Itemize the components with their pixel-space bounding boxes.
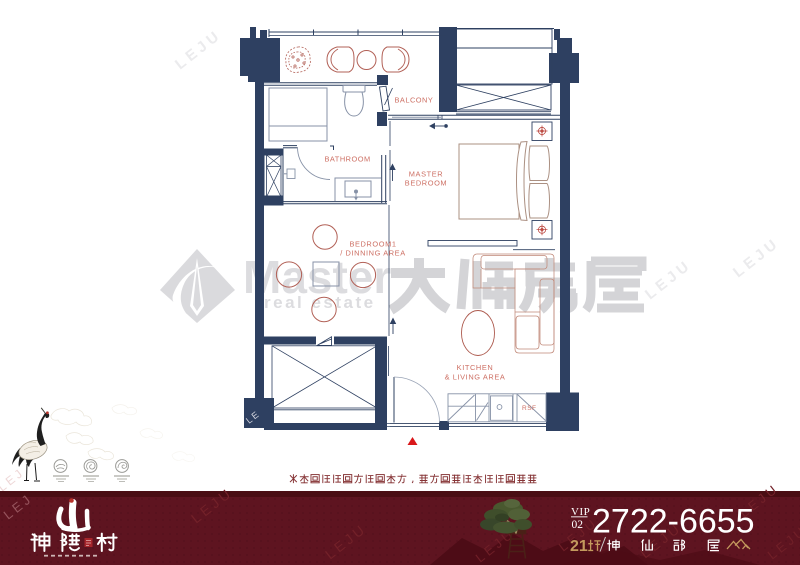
svg-text:BEDROOM1: BEDROOM1 [349,240,396,249]
svg-text:21: 21 [570,538,588,555]
svg-text:VIP: VIP [571,506,590,518]
svg-text:LEJU: LEJU [730,234,783,281]
svg-text:LEJU: LEJU [642,256,695,303]
svg-text:real estate: real estate [264,293,376,312]
svg-text:BATHROOM: BATHROOM [325,155,371,164]
svg-text:RSF: RSF [522,405,537,412]
svg-text:KITCHEN: KITCHEN [457,363,494,372]
svg-text:/ DINNING AREA: / DINNING AREA [340,249,405,258]
svg-text:& LIVING AREA: & LIVING AREA [445,373,506,382]
svg-text:2722-6655: 2722-6655 [592,503,755,541]
svg-text:BEDROOM: BEDROOM [405,179,447,188]
svg-text:MASTER: MASTER [409,170,443,179]
svg-text:LEJ: LEJ [0,465,27,494]
svg-text:BALCONY: BALCONY [395,96,434,105]
svg-text:LEJU: LEJU [172,26,225,73]
svg-text:02: 02 [572,519,584,531]
